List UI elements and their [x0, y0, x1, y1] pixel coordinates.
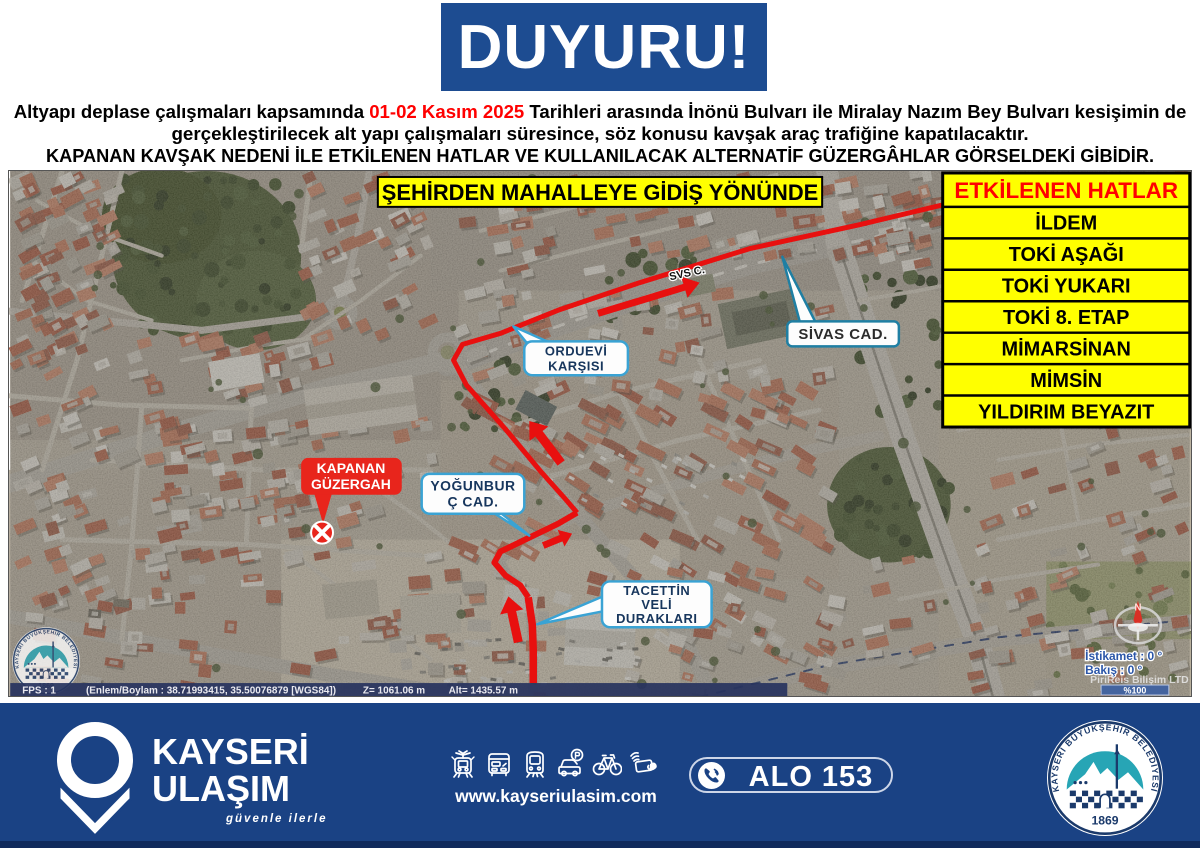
svg-text:YILDIRIM BEYAZIT: YILDIRIM BEYAZIT	[978, 401, 1154, 423]
svg-text:SİVAS CAD.: SİVAS CAD.	[798, 326, 887, 343]
svg-text:N: N	[1134, 602, 1141, 613]
svg-text:Alt= 1435.57 m: Alt= 1435.57 m	[449, 686, 519, 697]
svg-text:TOKİ YUKARI: TOKİ YUKARI	[1002, 274, 1131, 297]
svg-text:Z= 1061.06 m: Z= 1061.06 m	[363, 686, 425, 697]
svg-text:VELİ: VELİ	[641, 597, 672, 612]
svg-text:YOĞUNBUR: YOĞUNBUR	[430, 477, 515, 494]
svg-text:İstikamet : 0 °: İstikamet : 0 °	[1085, 648, 1162, 663]
svg-text:MİMSİN: MİMSİN	[1030, 369, 1102, 392]
svg-text:KARŞISI: KARŞISI	[548, 358, 604, 373]
svg-text:%100: %100	[1124, 686, 1147, 696]
svg-text:TOKİ 8. ETAP: TOKİ 8. ETAP	[1003, 306, 1129, 329]
svg-text:(Enlem/Boylam : 38.71993415, 3: (Enlem/Boylam : 38.71993415, 35.50076879…	[86, 686, 336, 697]
svg-text:KAPANAN: KAPANAN	[317, 460, 386, 476]
svg-text:TACETTİN: TACETTİN	[623, 583, 690, 598]
svg-text:ETKİLENEN HATLAR: ETKİLENEN HATLAR	[954, 178, 1178, 203]
svg-text:İLDEM: İLDEM	[1035, 211, 1097, 234]
svg-text:MİMARSİNAN: MİMARSİNAN	[1002, 337, 1131, 360]
svg-text:ŞEHİRDEN MAHALLEYE GİDİŞ YÖNÜN: ŞEHİRDEN MAHALLEYE GİDİŞ YÖNÜNDE	[382, 180, 819, 205]
svg-text:DURAKLARI: DURAKLARI	[616, 611, 697, 626]
svg-text:FPS : 1: FPS : 1	[22, 686, 56, 697]
svg-text:ORDUEVİ: ORDUEVİ	[545, 343, 607, 358]
svg-text:GÜZERGAH: GÜZERGAH	[311, 476, 391, 492]
svg-text:Ç CAD.: Ç CAD.	[447, 494, 498, 510]
svg-text:PiriReis Bilişim LTD: PiriReis Bilişim LTD	[1090, 675, 1189, 686]
svg-text:1869: 1869	[1091, 813, 1118, 827]
svg-text:TOKİ AŞAĞI: TOKİ AŞAĞI	[1009, 243, 1124, 266]
